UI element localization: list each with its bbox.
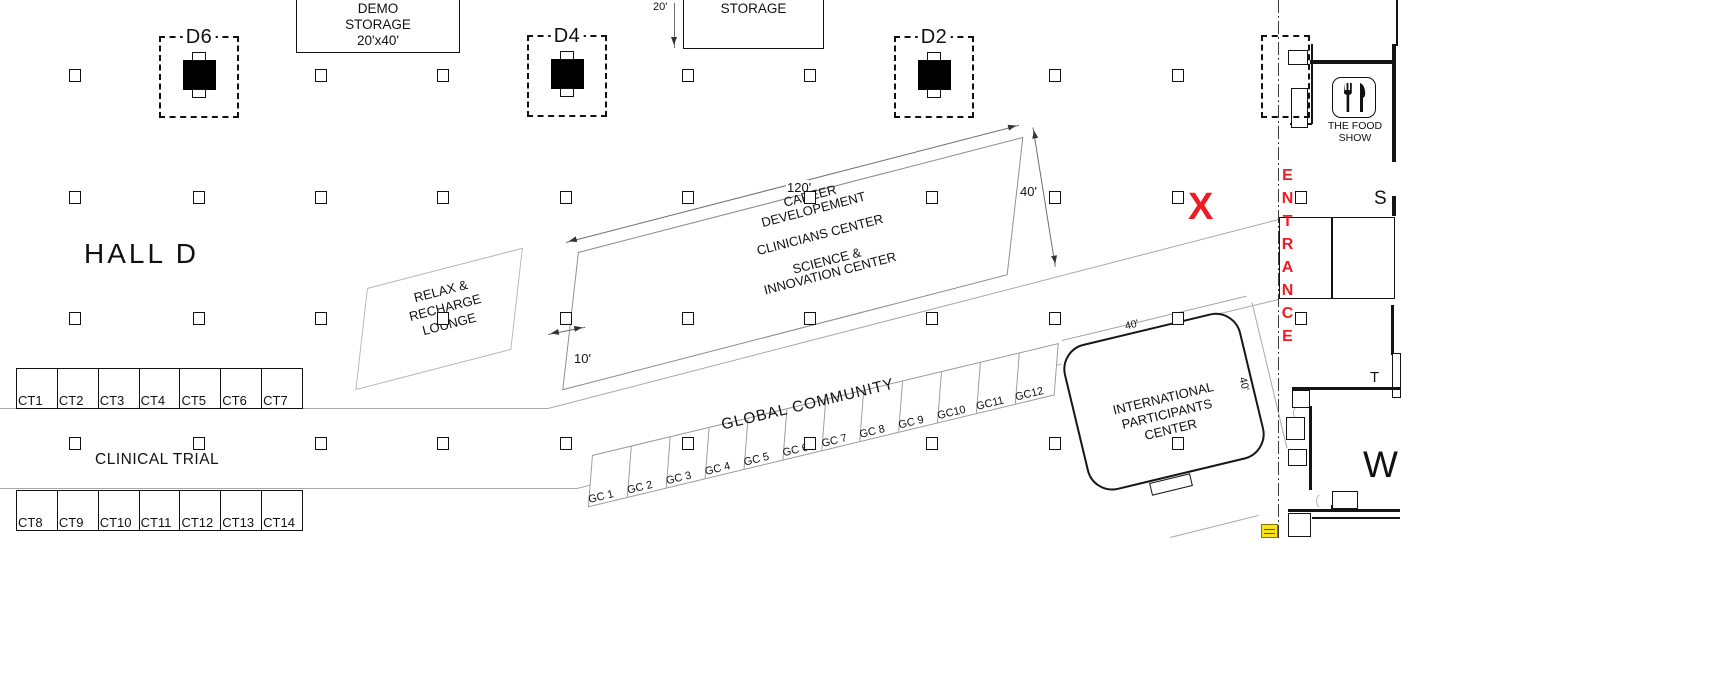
booth-ct4: CT4 [140,369,181,408]
global-community-booth-row: GC 1 GC 2 GC 3 GC 4 GC 5 GC 6 GC 7 GC 8 … [588,343,1059,507]
wall-segment [1309,406,1312,490]
booth-gc2: GC 2 [628,437,671,497]
column-marker [804,312,816,325]
column-marker [1295,312,1307,325]
column-marker [69,191,81,204]
door-frame [1332,491,1358,509]
booth-ct14: CT14 [262,491,302,530]
x-marker: X [1188,189,1213,225]
column-marker [315,437,327,450]
column-marker [315,191,327,204]
column-connector [927,52,941,61]
aisle-line-kiosk [1170,515,1259,538]
demo-storage-line2: STORAGE [345,17,411,33]
column-marker [926,312,938,325]
column-marker [1049,191,1061,204]
booth-pad-partial [1261,35,1310,118]
column-connector [560,88,574,97]
column-connector [192,89,206,98]
wall-segment [1396,0,1398,46]
column-marker [682,69,694,82]
demo-storage-size: 20'x40' [357,33,399,49]
clinical-trial-title: CLINICAL TRIAL [95,451,219,469]
storage-depth-dim-line [674,3,675,48]
wing-letter-t: T [1370,369,1379,386]
column-marker [804,69,816,82]
demo-storage-line1: DEMO [358,1,399,17]
column-marker [1172,437,1184,450]
booth-ct2: CT2 [58,369,99,408]
column-marker [1172,312,1184,325]
column-block-d4 [551,59,584,89]
door-frame [1286,417,1305,440]
booth-ct9: CT9 [58,491,99,530]
wing-letter-s: S [1374,188,1387,210]
column-marker [1172,191,1184,204]
column-marker [193,437,205,450]
column-connector [560,51,574,60]
storage-label: STORAGE [721,1,787,17]
column-marker [682,191,694,204]
booth-ct3: CT3 [99,369,140,408]
aisle-gap-dim-label: 10' [573,351,592,366]
column-marker [69,69,81,82]
column-marker [437,312,449,325]
column-marker [1049,437,1061,450]
column-marker [560,437,572,450]
booth-ct5: CT5 [180,369,221,408]
booth-pad-d2-label: D2 [918,26,951,48]
column-marker [1295,191,1307,204]
food-show-box [1332,77,1376,118]
booth-ct1: CT1 [17,369,58,408]
booth-ct10: CT10 [99,491,140,530]
booth-gc11: GC11 [977,353,1020,413]
entrance-vestibule [1279,217,1395,299]
column-block-d6 [183,60,216,90]
wall-segment [1310,60,1396,64]
fork-knife-icon [1336,81,1372,114]
exhibition-floor-plan: HALL D DEMO STORAGE 20'x40' STORAGE 20' … [0,0,1734,697]
booth-ct13: CT13 [221,491,262,530]
column-marker [926,437,938,450]
column-marker [315,312,327,325]
booth-gc1: GC 1 [589,446,632,506]
column-marker [315,69,327,82]
column-marker [682,437,694,450]
column-marker [193,312,205,325]
kiosk-highlight [1261,524,1278,538]
international-participants-center: INTERNATIONAL PARTICIPANTS CENTER [1058,308,1270,496]
column-marker [1172,69,1184,82]
door-frame [1292,390,1310,408]
booth-ct8: CT8 [17,491,58,530]
column-marker [69,437,81,450]
booth-pad-d4-label: D4 [551,25,584,47]
column-marker [804,437,816,450]
booth-ct11: CT11 [140,491,181,530]
column-marker [437,437,449,450]
column-marker [804,191,816,204]
column-marker [1049,312,1061,325]
storage-depth-dim-label: 20' [652,1,668,13]
column-marker [560,191,572,204]
column-marker [193,191,205,204]
column-marker [682,312,694,325]
wall-segment [1311,44,1313,124]
wing-letter-w: W [1363,444,1398,486]
wall-segment [1392,44,1396,162]
door-frame [1288,449,1307,466]
column-marker [926,191,938,204]
booth-gc12: GC12 [1016,344,1058,403]
booth-pad-d6-label: D6 [183,26,216,48]
wall-segment [1391,305,1394,355]
food-show-label: THE FOOD SHOW [1320,120,1390,144]
aisle-line-lower-left [0,488,577,489]
column-marker [437,191,449,204]
column-connector [927,89,941,98]
hall-title: HALL D [84,238,199,270]
column-marker [69,312,81,325]
booth-ct6: CT6 [221,369,262,408]
entrance-label: E N T R A N C E [1281,169,1294,343]
column-marker [1049,69,1061,82]
clinical-trial-row1: CT1 CT2 CT3 CT4 CT5 CT6 CT7 [16,368,303,409]
booth-ct7: CT7 [262,369,302,408]
column-marker [437,69,449,82]
wall-segment [1392,353,1401,398]
demo-storage-box: DEMO STORAGE 20'x40' [296,0,460,53]
storage-box: STORAGE [683,0,824,49]
block-depth-dim-label: 40' [1019,184,1038,199]
column-block-d2 [918,60,951,90]
column-connector [192,52,206,61]
wall-segment [1312,517,1400,519]
wall-segment [1392,196,1396,216]
clinical-trial-row2: CT8 CT9 CT10 CT11 CT12 CT13 CT14 [16,490,303,531]
booth-ct12: CT12 [180,491,221,530]
entrance-vestibule-divider [1331,217,1333,299]
wall-segment [1288,509,1400,512]
booth-gc10: GC10 [938,363,981,423]
door-frame [1288,513,1311,537]
column-marker [560,312,572,325]
